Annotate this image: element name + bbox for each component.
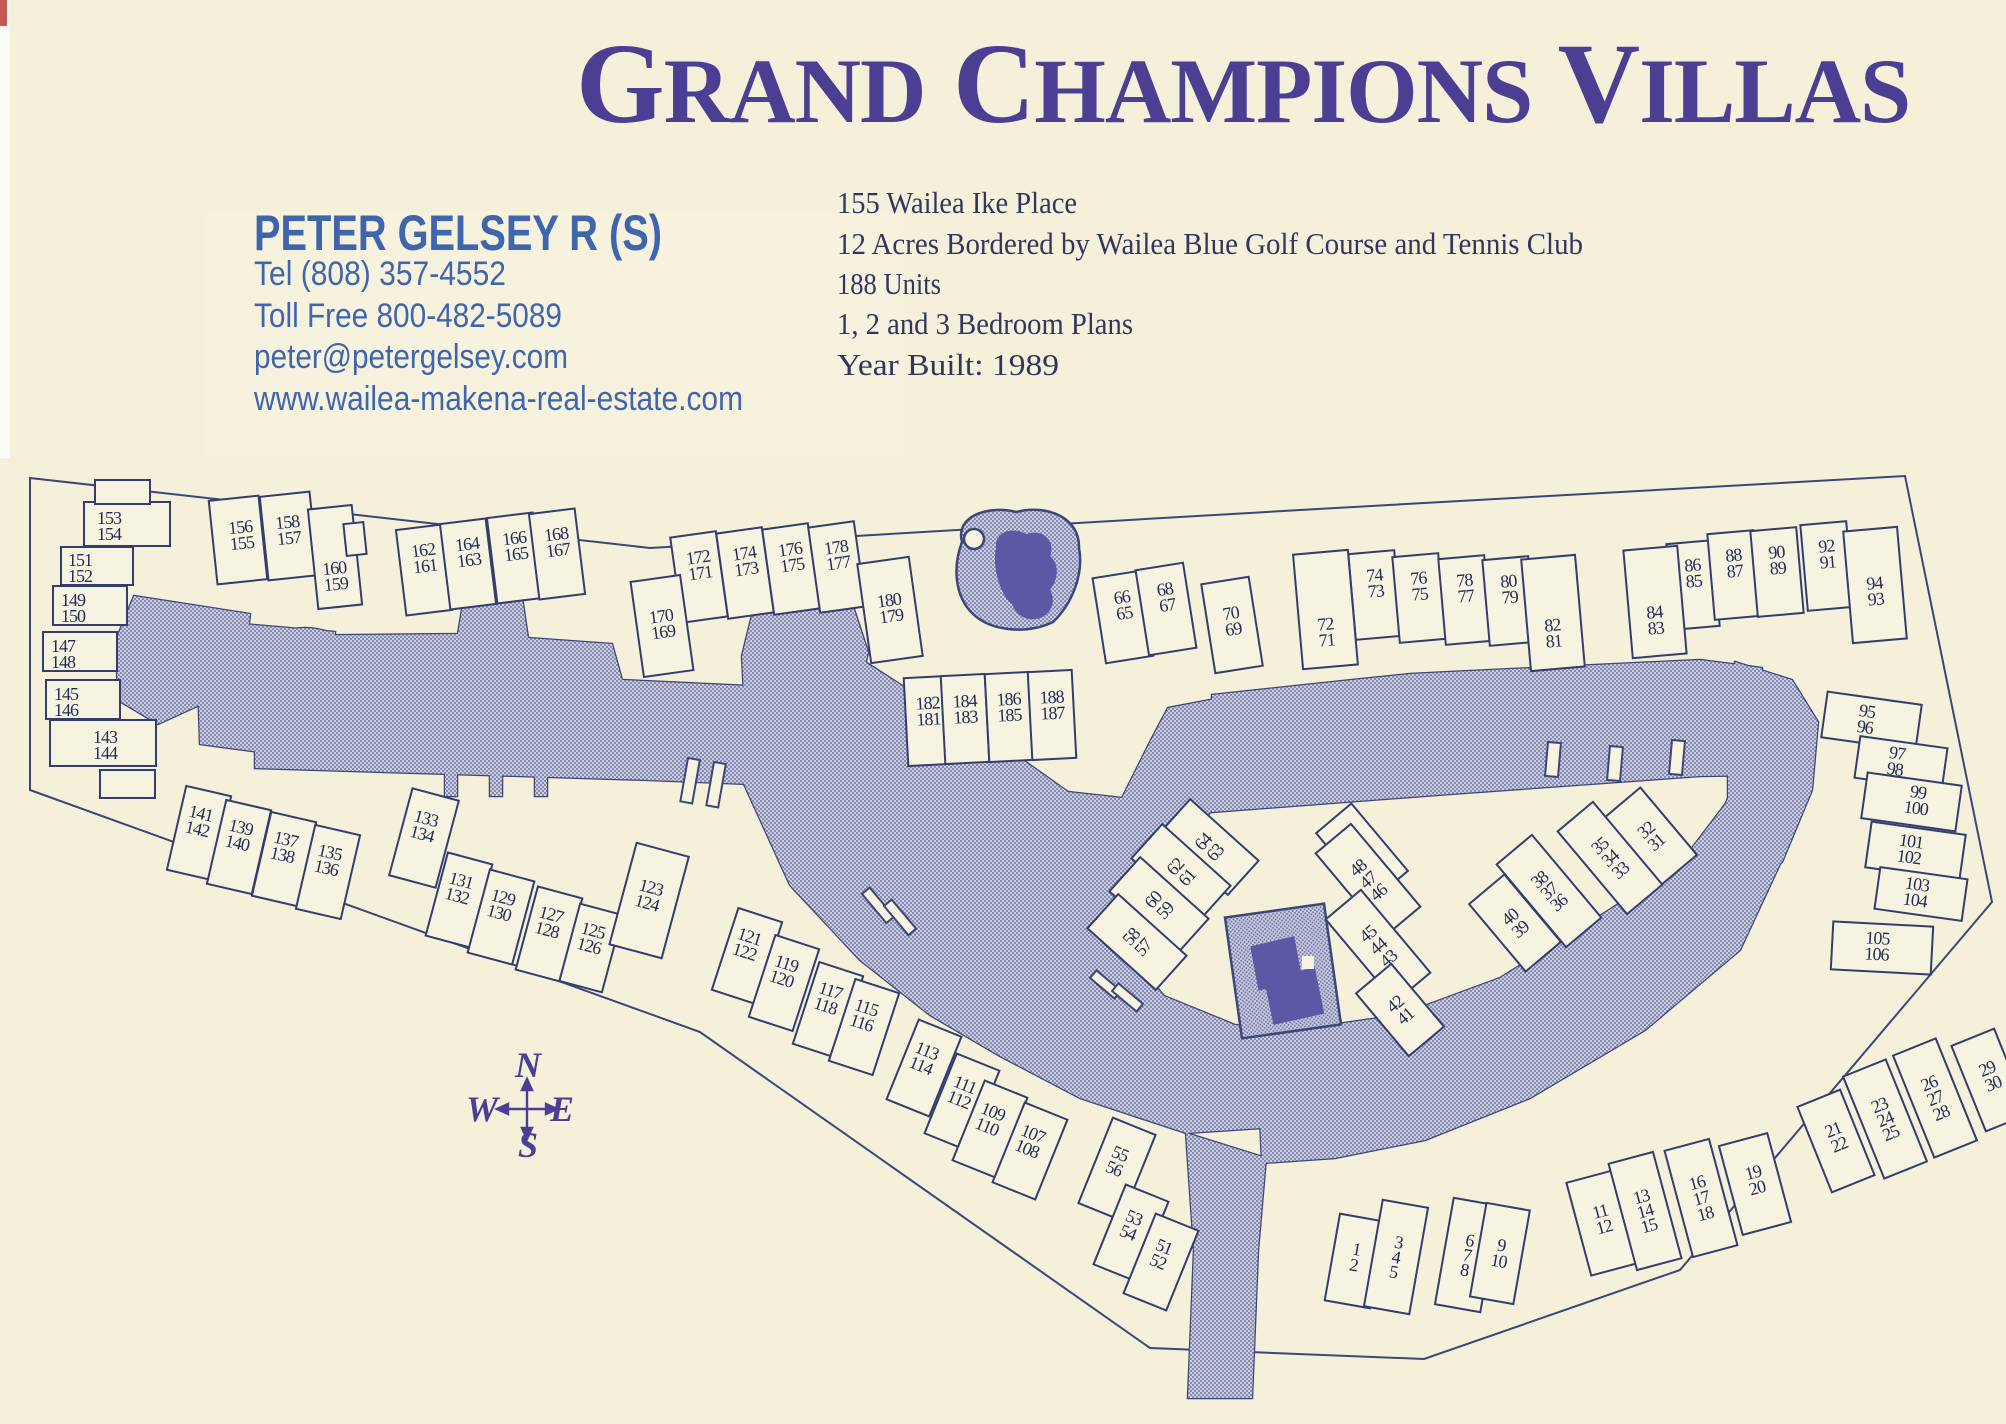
svg-text:105106: 105106 [1864,927,1891,964]
svg-text:Toll Free 800-482-5089: Toll Free 800-482-5089 [254,297,562,335]
svg-text:S: S [518,1125,538,1165]
svg-text:149150: 149150 [61,590,86,626]
svg-text:160159: 160159 [321,557,350,595]
svg-text:188187: 188187 [1039,686,1066,723]
svg-text:182181: 182181 [915,692,941,729]
svg-text:158157: 158157 [274,511,303,549]
svg-text:162161: 162161 [410,539,438,578]
svg-text:101102: 101102 [1896,830,1925,869]
svg-text:GRAND CHAMPIONS VILLAS: GRAND CHAMPIONS VILLAS [576,20,1910,147]
svg-text:E: E [549,1089,574,1129]
svg-text:153154: 153154 [97,508,122,544]
svg-text:143144: 143144 [93,727,118,763]
svg-text:156155: 156155 [227,516,256,554]
svg-text:Year Built: 1989: Year Built: 1989 [837,347,1059,382]
svg-text:155 Wailea Ike Place: 155 Wailea Ike Place [837,185,1077,220]
svg-text:PETER GELSEY R (S): PETER GELSEY R (S) [254,205,662,261]
svg-text:7271: 7271 [1316,613,1335,650]
svg-text:188 Units: 188 Units [837,266,941,301]
svg-text:9291: 9291 [1817,535,1836,572]
svg-text:12 Acres Bordered by Wailea Bl: 12 Acres Bordered by Wailea Blue Golf Co… [837,226,1583,261]
svg-text:www.wailea-makena-real-estate.: www.wailea-makena-real-estate.com [253,380,743,418]
svg-text:N: N [514,1045,543,1085]
svg-text:8281: 8281 [1543,614,1562,651]
svg-text:151152: 151152 [68,550,92,586]
svg-text:Tel (808) 357-4552: Tel (808) 357-4552 [254,255,506,293]
svg-text:147148: 147148 [51,636,76,672]
svg-text:186185: 186185 [996,688,1023,725]
svg-text:peter@petergelsey.com: peter@petergelsey.com [254,338,568,376]
svg-text:145146: 145146 [54,684,79,720]
svg-text:172171: 172171 [685,546,714,585]
svg-text:184183: 184183 [952,690,979,727]
svg-text:1, 2 and 3 Bedroom Plans: 1, 2 and 3 Bedroom Plans [837,306,1133,341]
svg-text:W: W [466,1089,501,1129]
